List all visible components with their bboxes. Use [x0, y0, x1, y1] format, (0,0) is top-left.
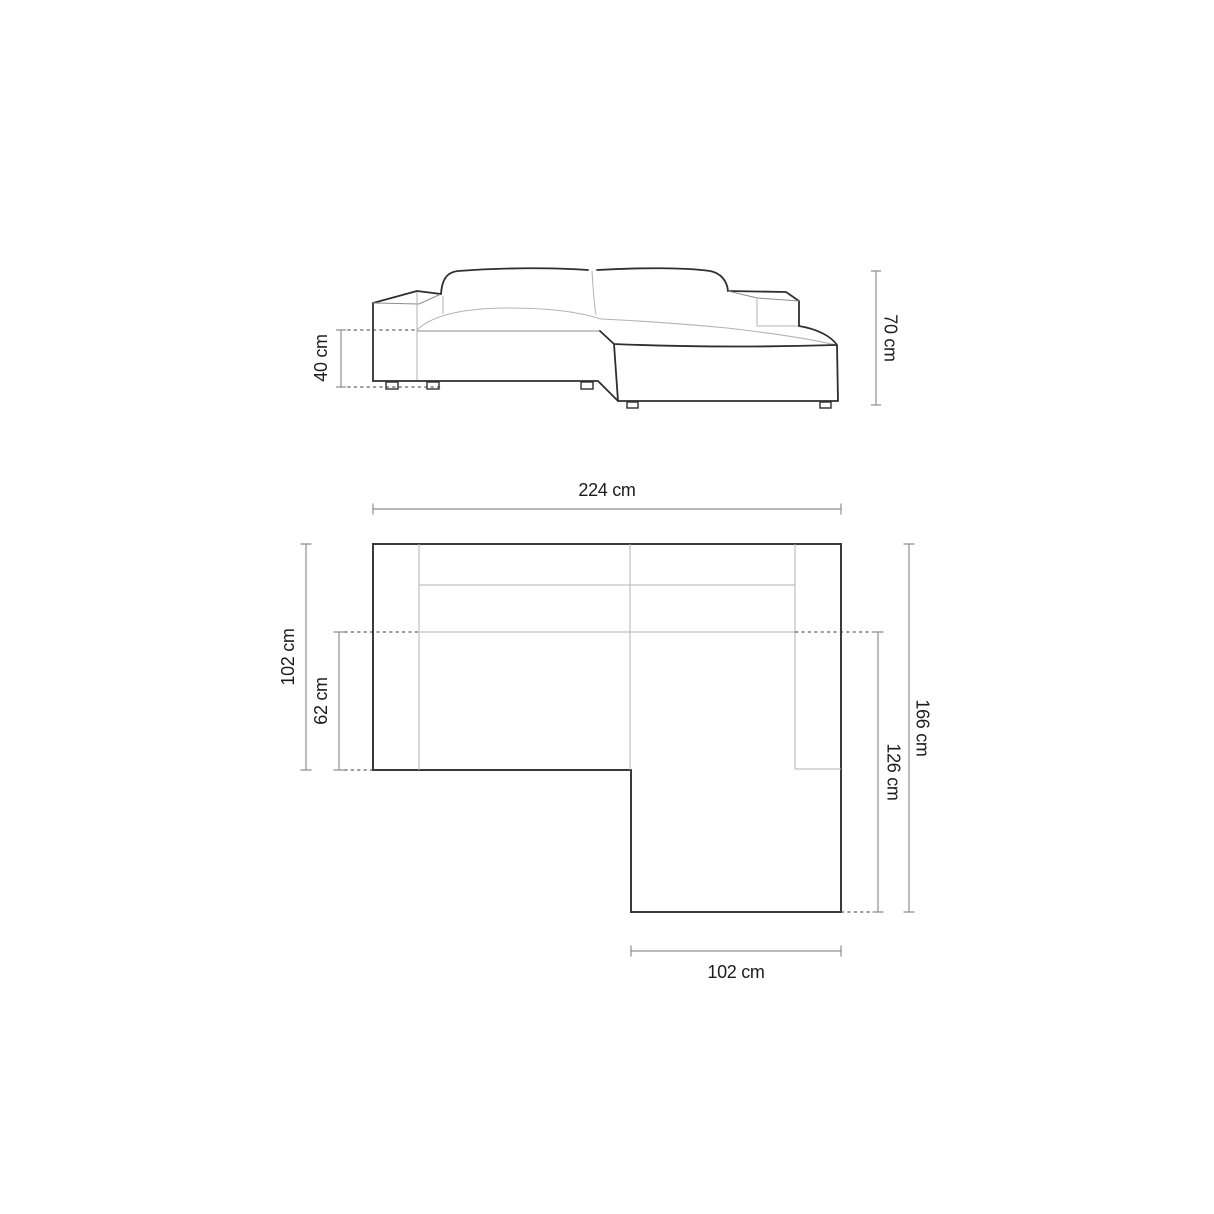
dimension-drawing-canvas: 40 cm 70 cm 224 cm [0, 0, 1214, 1214]
backrest-left-cushion [441, 268, 588, 294]
dim-label-overall-depth: 166 cm [912, 699, 932, 756]
dim-label-overall-height: 70 cm [880, 314, 900, 362]
left-armrest-outline [373, 291, 441, 381]
sofa-foot [581, 382, 593, 389]
dimension-line [873, 632, 884, 912]
backrest-cushion-seam [592, 271, 596, 315]
dim-label-overall-width: 224 cm [578, 480, 635, 500]
dimension-line [871, 271, 881, 405]
dimension-line [631, 946, 841, 957]
dimension-overall-height: 70 cm [871, 271, 900, 405]
sofa-elevation-drawing [373, 268, 838, 408]
dim-label-seat-depth: 62 cm [311, 677, 331, 725]
sofa-foot [427, 382, 439, 389]
right-armrest-outline [728, 291, 799, 326]
chaise-front-left-edge [614, 344, 618, 401]
dimension-seat-height: 40 cm [311, 330, 441, 387]
plan-outline [373, 544, 841, 912]
dim-label-chaise-width: 102 cm [707, 962, 764, 982]
dim-label-seat-height: 40 cm [311, 334, 331, 382]
left-armrest-top-edge [373, 294, 441, 304]
dimension-overall-width: 224 cm [373, 480, 841, 515]
dimension-line [301, 544, 312, 770]
dimension-chaise-width: 102 cm [631, 946, 841, 983]
right-armrest-seam [757, 299, 798, 326]
seat-cushion-curve [417, 308, 601, 330]
sofa-foot [386, 382, 398, 389]
dimension-overall-depth: 166 cm [904, 544, 933, 912]
sofa-foot [820, 402, 831, 408]
sofa-plan-view: 224 cm 102 cm 62 cm 166 cm [278, 480, 933, 982]
sofa-plan-drawing [373, 544, 841, 912]
dimension-body-depth: 102 cm [278, 544, 312, 770]
sofa-elevation-view: 40 cm 70 cm [311, 268, 901, 408]
dim-label-chaise-depth: 126 cm [883, 743, 903, 800]
dimension-line [336, 330, 346, 387]
chaise-top-front-edge [600, 331, 836, 347]
sofa-dimension-diagram: 40 cm 70 cm 224 cm [0, 0, 1214, 1214]
dimension-line [373, 504, 841, 515]
chaise-cushion-curve [601, 319, 836, 345]
dim-label-body-depth: 102 cm [278, 628, 298, 685]
sofa-foot [627, 402, 638, 408]
backrest-right-cushion [597, 268, 728, 291]
dimension-line [334, 632, 345, 770]
